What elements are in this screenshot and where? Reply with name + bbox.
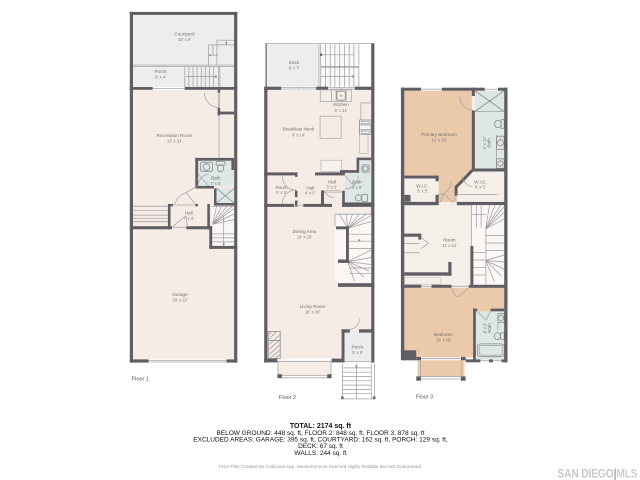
svg-text:Bath: Bath xyxy=(487,138,492,148)
svg-text:18' x 16': 18' x 16' xyxy=(436,338,452,343)
svg-text:Bath: Bath xyxy=(352,180,362,185)
svg-text:8' x 5': 8' x 5' xyxy=(482,322,487,333)
svg-text:Recreation Room: Recreation Room xyxy=(157,133,193,138)
svg-text:18' x 20': 18' x 20' xyxy=(305,310,321,315)
svg-text:9' x 14': 9' x 14' xyxy=(334,108,347,113)
svg-text:Porch: Porch xyxy=(154,69,166,74)
svg-text:5' x 2': 5' x 2' xyxy=(326,184,337,189)
svg-text:9' x 7': 9' x 7' xyxy=(289,66,300,71)
svg-text:12' x 20': 12' x 20' xyxy=(431,138,447,143)
svg-text:Bath: Bath xyxy=(211,176,221,181)
svg-text:9' x 4': 9' x 4' xyxy=(155,75,166,80)
svg-text:5' x 5': 5' x 5' xyxy=(352,350,363,355)
svg-text:18' x 9': 18' x 9' xyxy=(178,37,191,42)
svg-text:Hall: Hall xyxy=(185,210,193,215)
svg-text:4' x 14': 4' x 14' xyxy=(482,136,487,149)
svg-text:Porch: Porch xyxy=(351,345,363,350)
svg-text:Dining Area: Dining Area xyxy=(293,229,317,234)
svg-text:SAN DIEGO|MLS: SAN DIEGO|MLS xyxy=(557,468,638,480)
svg-text:Breakfast Nook: Breakfast Nook xyxy=(283,127,315,132)
svg-text:Kitchen: Kitchen xyxy=(333,102,349,107)
svg-text:Living Room: Living Room xyxy=(300,304,326,309)
svg-text:7' x 8': 7' x 8' xyxy=(210,181,221,186)
svg-text:5' x 5': 5' x 5' xyxy=(417,188,428,193)
svg-text:Floor 2: Floor 2 xyxy=(279,395,296,401)
svg-text:Courtyard: Courtyard xyxy=(174,32,195,37)
svg-text:5' x 8': 5' x 8' xyxy=(351,185,362,190)
svg-text:6' x 5': 6' x 5' xyxy=(475,184,486,189)
svg-text:Primary Bedroom: Primary Bedroom xyxy=(421,132,457,137)
svg-text:11' x 14': 11' x 14' xyxy=(442,243,457,248)
svg-text:Bath: Bath xyxy=(487,323,492,333)
svg-text:Garage: Garage xyxy=(172,292,188,297)
svg-text:9' x 14': 9' x 14' xyxy=(292,132,305,137)
svg-text:5' x 5': 5' x 5' xyxy=(276,190,287,195)
svg-text:Hall: Hall xyxy=(306,185,314,190)
svg-text:Room: Room xyxy=(443,238,455,243)
svg-text:WALLS: 244 sq. ft: WALLS: 244 sq. ft xyxy=(294,450,346,457)
svg-text:Floor 1: Floor 1 xyxy=(132,377,149,383)
svg-text:Floor Plan Created By Cubicasa: Floor Plan Created By Cubicasa App. Meas… xyxy=(219,464,423,469)
svg-text:Floor 3: Floor 3 xyxy=(416,394,433,400)
svg-text:4' x 5': 4' x 5' xyxy=(305,191,316,196)
svg-text:18' x 22': 18' x 22' xyxy=(172,298,188,303)
svg-text:14' x 10': 14' x 10' xyxy=(297,235,313,240)
svg-text:Deck: Deck xyxy=(289,60,300,65)
svg-text:Bedroom: Bedroom xyxy=(434,332,453,337)
svg-text:13' x 24': 13' x 24' xyxy=(167,139,183,144)
